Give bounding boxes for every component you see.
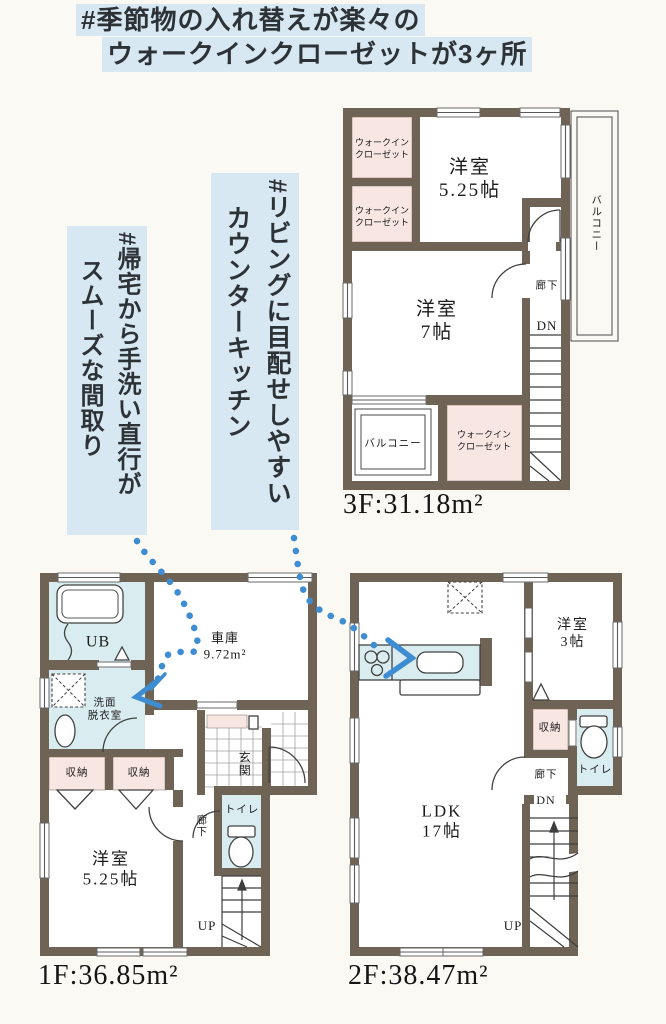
f2-area-label: 2F:38.47m² xyxy=(348,960,489,992)
f1-toilet-label: トイレ xyxy=(225,805,260,818)
callout-handwash: #帰宅から手洗い直行が スムーズな間取り xyxy=(67,226,147,535)
f2-room3-label: 洋室3帖 xyxy=(557,618,589,652)
floor1-drawing xyxy=(35,568,327,963)
f3-area-label: 3F:31.18m² xyxy=(343,489,484,521)
washbasin-icon xyxy=(55,715,75,747)
f2-ldk-label: LDK17帖 xyxy=(422,802,463,843)
hashtag-header-line1: #季節物の入れ替えが楽々の xyxy=(76,4,532,37)
f2-up-label: UP xyxy=(504,918,523,934)
hashtag-header: #季節物の入れ替えが楽々の ウォークインクローゼットが3ヶ所 xyxy=(76,4,532,72)
f3-dn-label: DN xyxy=(537,318,558,334)
toilet-bowl-icon xyxy=(229,837,253,867)
hashtag-header-line2: ウォークインクローゼットが3ヶ所 xyxy=(76,37,532,72)
f1-storage2-label: 収納 xyxy=(128,768,151,781)
f1-garage-label: 車庫9.72m² xyxy=(204,630,247,661)
floorplan-flyer: #季節物の入れ替えが楽々の ウォークインクローゼットが3ヶ所 #リビングに目配せ… xyxy=(0,0,666,1024)
f2-storage-label: 収納 xyxy=(539,723,562,736)
f2-dn-label: DN xyxy=(536,793,555,807)
f2-toilet-label: トイレ xyxy=(578,765,613,778)
f1-up-label: UP xyxy=(198,918,217,934)
toilet-bowl-icon xyxy=(581,726,607,758)
f1-hallway-label: 廊下 xyxy=(194,815,207,838)
f1-entrance-label: 玄関 xyxy=(237,751,251,777)
f1-room525-label: 洋室5.25帖 xyxy=(83,850,140,891)
f2-hallway-label: 廊下 xyxy=(535,770,558,783)
callout-counter-kitchen-line2: カウンターキッチン xyxy=(217,179,257,524)
kitchen-sink-icon xyxy=(417,652,463,673)
f3-room525-label: 洋室5.25帖 xyxy=(439,157,501,203)
toilet-tank-icon xyxy=(228,826,255,837)
callout-counter-kitchen: #リビングに目配せしやすい カウンターキッチン xyxy=(211,173,299,530)
floor1-plan xyxy=(35,568,327,963)
f1-storage1-label: 収納 xyxy=(66,768,89,781)
f1-ub-label: UB xyxy=(86,632,110,651)
f3-wic-top-label: ウォークインクローゼット xyxy=(355,137,409,160)
f3-hallway-label: 廊下 xyxy=(536,281,559,294)
callout-handwash-line1: #帰宅から手洗い直行が xyxy=(108,232,145,529)
f3-wic-mid-label: ウォークインクローゼット xyxy=(355,205,409,228)
f3-wic-bottom-label: ウォークインクローゼット xyxy=(457,429,511,452)
f3-balcony-bottom-label: バルコニー xyxy=(364,439,421,452)
f3-room7-label: 洋室7帖 xyxy=(416,299,458,345)
callout-counter-kitchen-line1: #リビングに目配せしやすい xyxy=(257,179,297,524)
f1-washroom-label: 洗面脱衣室 xyxy=(88,697,123,722)
callout-handwash-line2: スムーズな間取り xyxy=(71,232,108,529)
f3-balcony-right-label: バルコニー xyxy=(589,194,602,252)
toilet-tank-icon xyxy=(580,716,607,727)
counter-icon xyxy=(400,680,480,695)
f1-area-label: 1F:36.85m² xyxy=(38,960,179,992)
